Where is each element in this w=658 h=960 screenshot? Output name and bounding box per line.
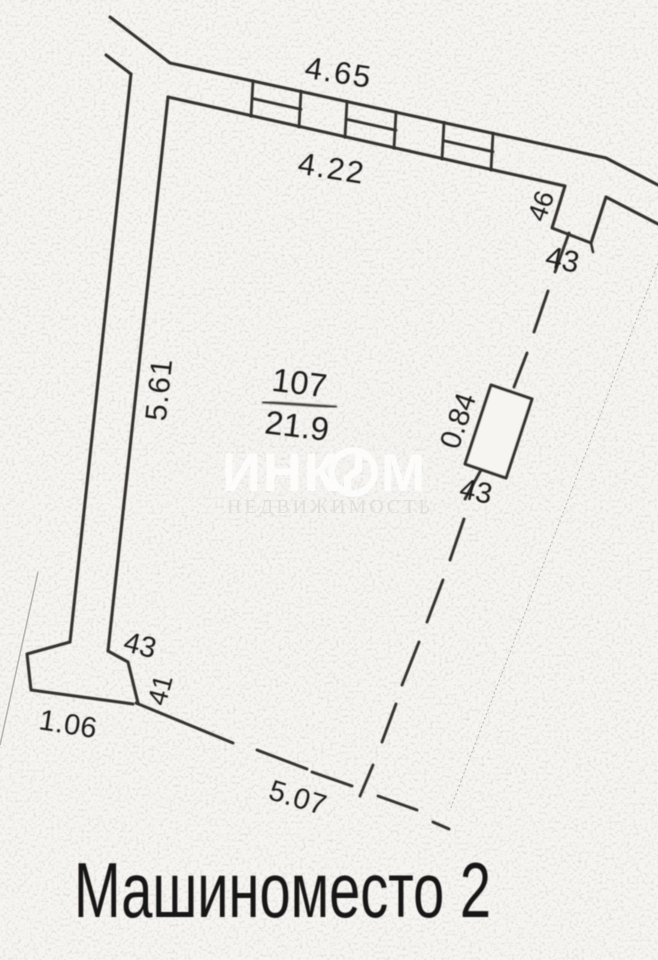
svg-text:43: 43 (543, 241, 583, 280)
svg-text:21.9: 21.9 (263, 403, 331, 448)
svg-text:5.61: 5.61 (140, 356, 179, 422)
svg-text:ИНК: ИНК (222, 443, 339, 503)
svg-text:М: М (381, 444, 425, 503)
svg-text:НЕДВИЖИМОСТЬ: НЕДВИЖИМОСТЬ (227, 496, 433, 518)
svg-text:Машиноместо 2: Машиноместо 2 (74, 846, 491, 934)
svg-text:107: 107 (270, 361, 329, 404)
svg-text:43: 43 (457, 473, 495, 511)
